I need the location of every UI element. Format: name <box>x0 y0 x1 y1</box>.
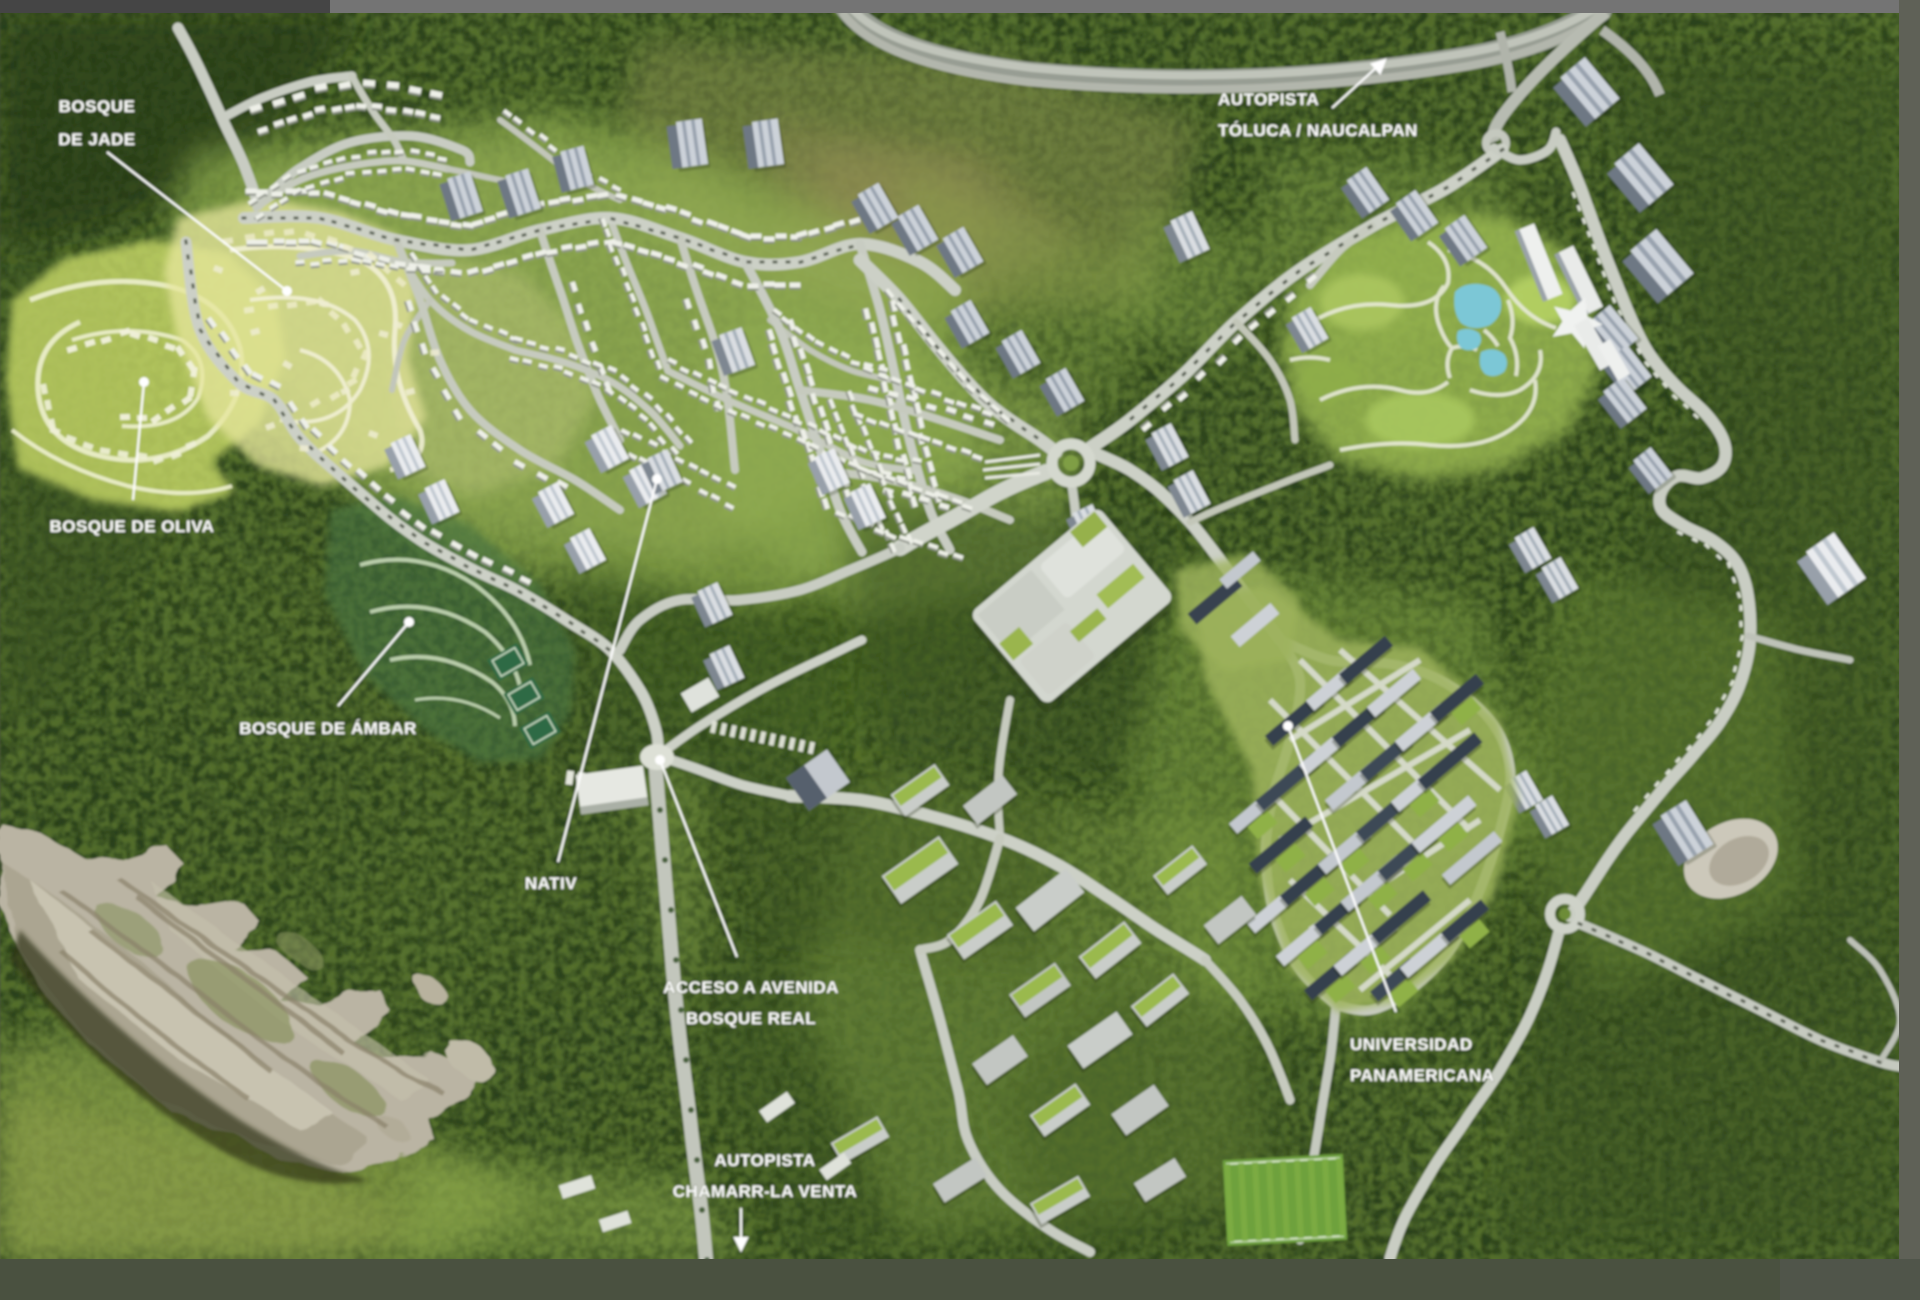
svg-text:ACCESO A AVENIDA: ACCESO A AVENIDA <box>663 978 839 997</box>
svg-text:UNIVERSIDAD: UNIVERSIDAD <box>1350 1035 1473 1054</box>
svg-text:BOSQUE DE ÁMBAR: BOSQUE DE ÁMBAR <box>239 719 417 738</box>
svg-text:CHAMARR-LA VENTA: CHAMARR-LA VENTA <box>673 1182 858 1201</box>
svg-text:AUTOPISTA: AUTOPISTA <box>714 1151 815 1170</box>
svg-text:NATIV: NATIV <box>525 874 577 893</box>
svg-text:BOSQUE DE OLIVA: BOSQUE DE OLIVA <box>50 517 215 536</box>
svg-text:BOSQUE: BOSQUE <box>59 97 136 116</box>
svg-text:TÓLUCA / NAUCALPAN: TÓLUCA / NAUCALPAN <box>1218 121 1418 140</box>
svg-text:BOSQUE REAL: BOSQUE REAL <box>686 1009 816 1028</box>
svg-text:AUTOPISTA: AUTOPISTA <box>1218 90 1319 109</box>
svg-text:DE JADE: DE JADE <box>58 130 135 149</box>
svg-text:PANAMERICANA: PANAMERICANA <box>1350 1066 1495 1085</box>
